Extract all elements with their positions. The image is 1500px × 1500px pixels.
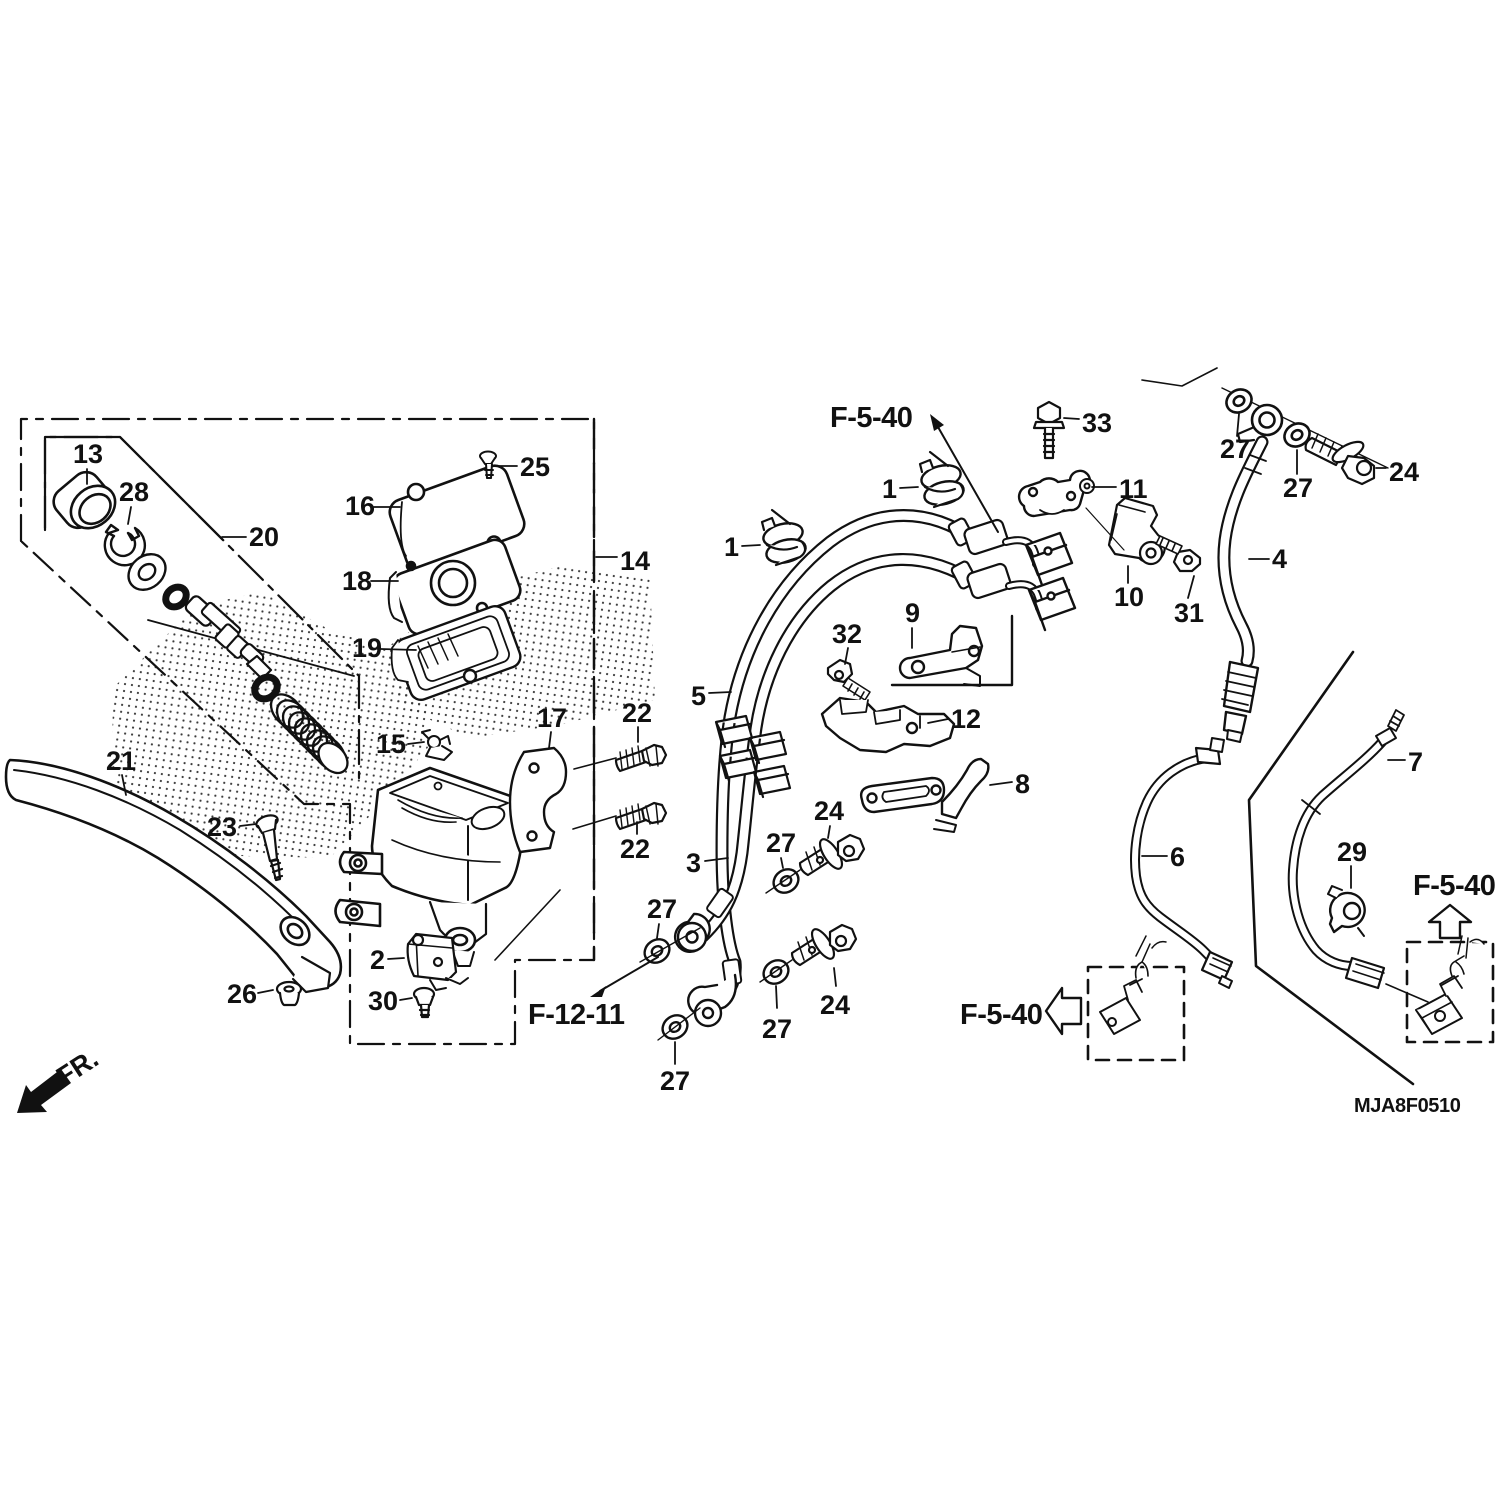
svg-text:8: 8 xyxy=(1015,769,1030,799)
svg-text:24: 24 xyxy=(1389,457,1419,487)
svg-text:7: 7 xyxy=(1408,747,1423,777)
svg-text:25: 25 xyxy=(520,452,550,482)
svg-text:22: 22 xyxy=(620,834,650,864)
svg-text:27: 27 xyxy=(1283,473,1313,503)
svg-text:30: 30 xyxy=(368,986,398,1016)
svg-text:27: 27 xyxy=(660,1066,690,1096)
svg-text:29: 29 xyxy=(1337,837,1367,867)
svg-text:16: 16 xyxy=(345,491,375,521)
svg-text:13: 13 xyxy=(73,439,103,469)
svg-text:24: 24 xyxy=(814,796,844,826)
svg-text:33: 33 xyxy=(1082,408,1112,438)
svg-text:18: 18 xyxy=(342,566,372,596)
svg-text:17: 17 xyxy=(537,703,567,733)
svg-text:21: 21 xyxy=(106,746,136,776)
svg-text:F-5-40: F-5-40 xyxy=(1413,870,1495,902)
svg-text:23: 23 xyxy=(207,812,237,842)
svg-text:15: 15 xyxy=(376,729,406,759)
svg-text:31: 31 xyxy=(1174,598,1204,628)
svg-text:27: 27 xyxy=(647,894,677,924)
svg-text:MJA8F0510: MJA8F0510 xyxy=(1354,1095,1461,1117)
svg-text:22: 22 xyxy=(622,698,652,728)
svg-text:6: 6 xyxy=(1170,842,1185,872)
svg-text:26: 26 xyxy=(227,979,257,1009)
svg-text:3: 3 xyxy=(686,848,701,878)
svg-text:F-5-40: F-5-40 xyxy=(960,999,1042,1031)
svg-text:20: 20 xyxy=(249,522,279,552)
svg-text:5: 5 xyxy=(691,681,706,711)
svg-text:32: 32 xyxy=(832,619,862,649)
svg-text:F-12-11: F-12-11 xyxy=(528,999,625,1031)
svg-text:11: 11 xyxy=(1119,474,1148,504)
svg-text:27: 27 xyxy=(766,828,796,858)
svg-text:14: 14 xyxy=(620,546,650,576)
svg-text:9: 9 xyxy=(905,598,920,628)
svg-text:27: 27 xyxy=(1220,434,1250,464)
svg-text:27: 27 xyxy=(762,1014,792,1044)
svg-text:28: 28 xyxy=(119,477,149,507)
svg-text:10: 10 xyxy=(1114,582,1144,612)
svg-text:2: 2 xyxy=(370,945,385,975)
svg-text:12: 12 xyxy=(951,704,981,734)
svg-text:1: 1 xyxy=(724,532,739,562)
svg-text:F-5-40: F-5-40 xyxy=(830,402,912,434)
svg-text:1: 1 xyxy=(882,474,897,504)
svg-text:19: 19 xyxy=(352,633,382,663)
svg-text:24: 24 xyxy=(820,990,850,1020)
svg-text:4: 4 xyxy=(1272,544,1287,574)
